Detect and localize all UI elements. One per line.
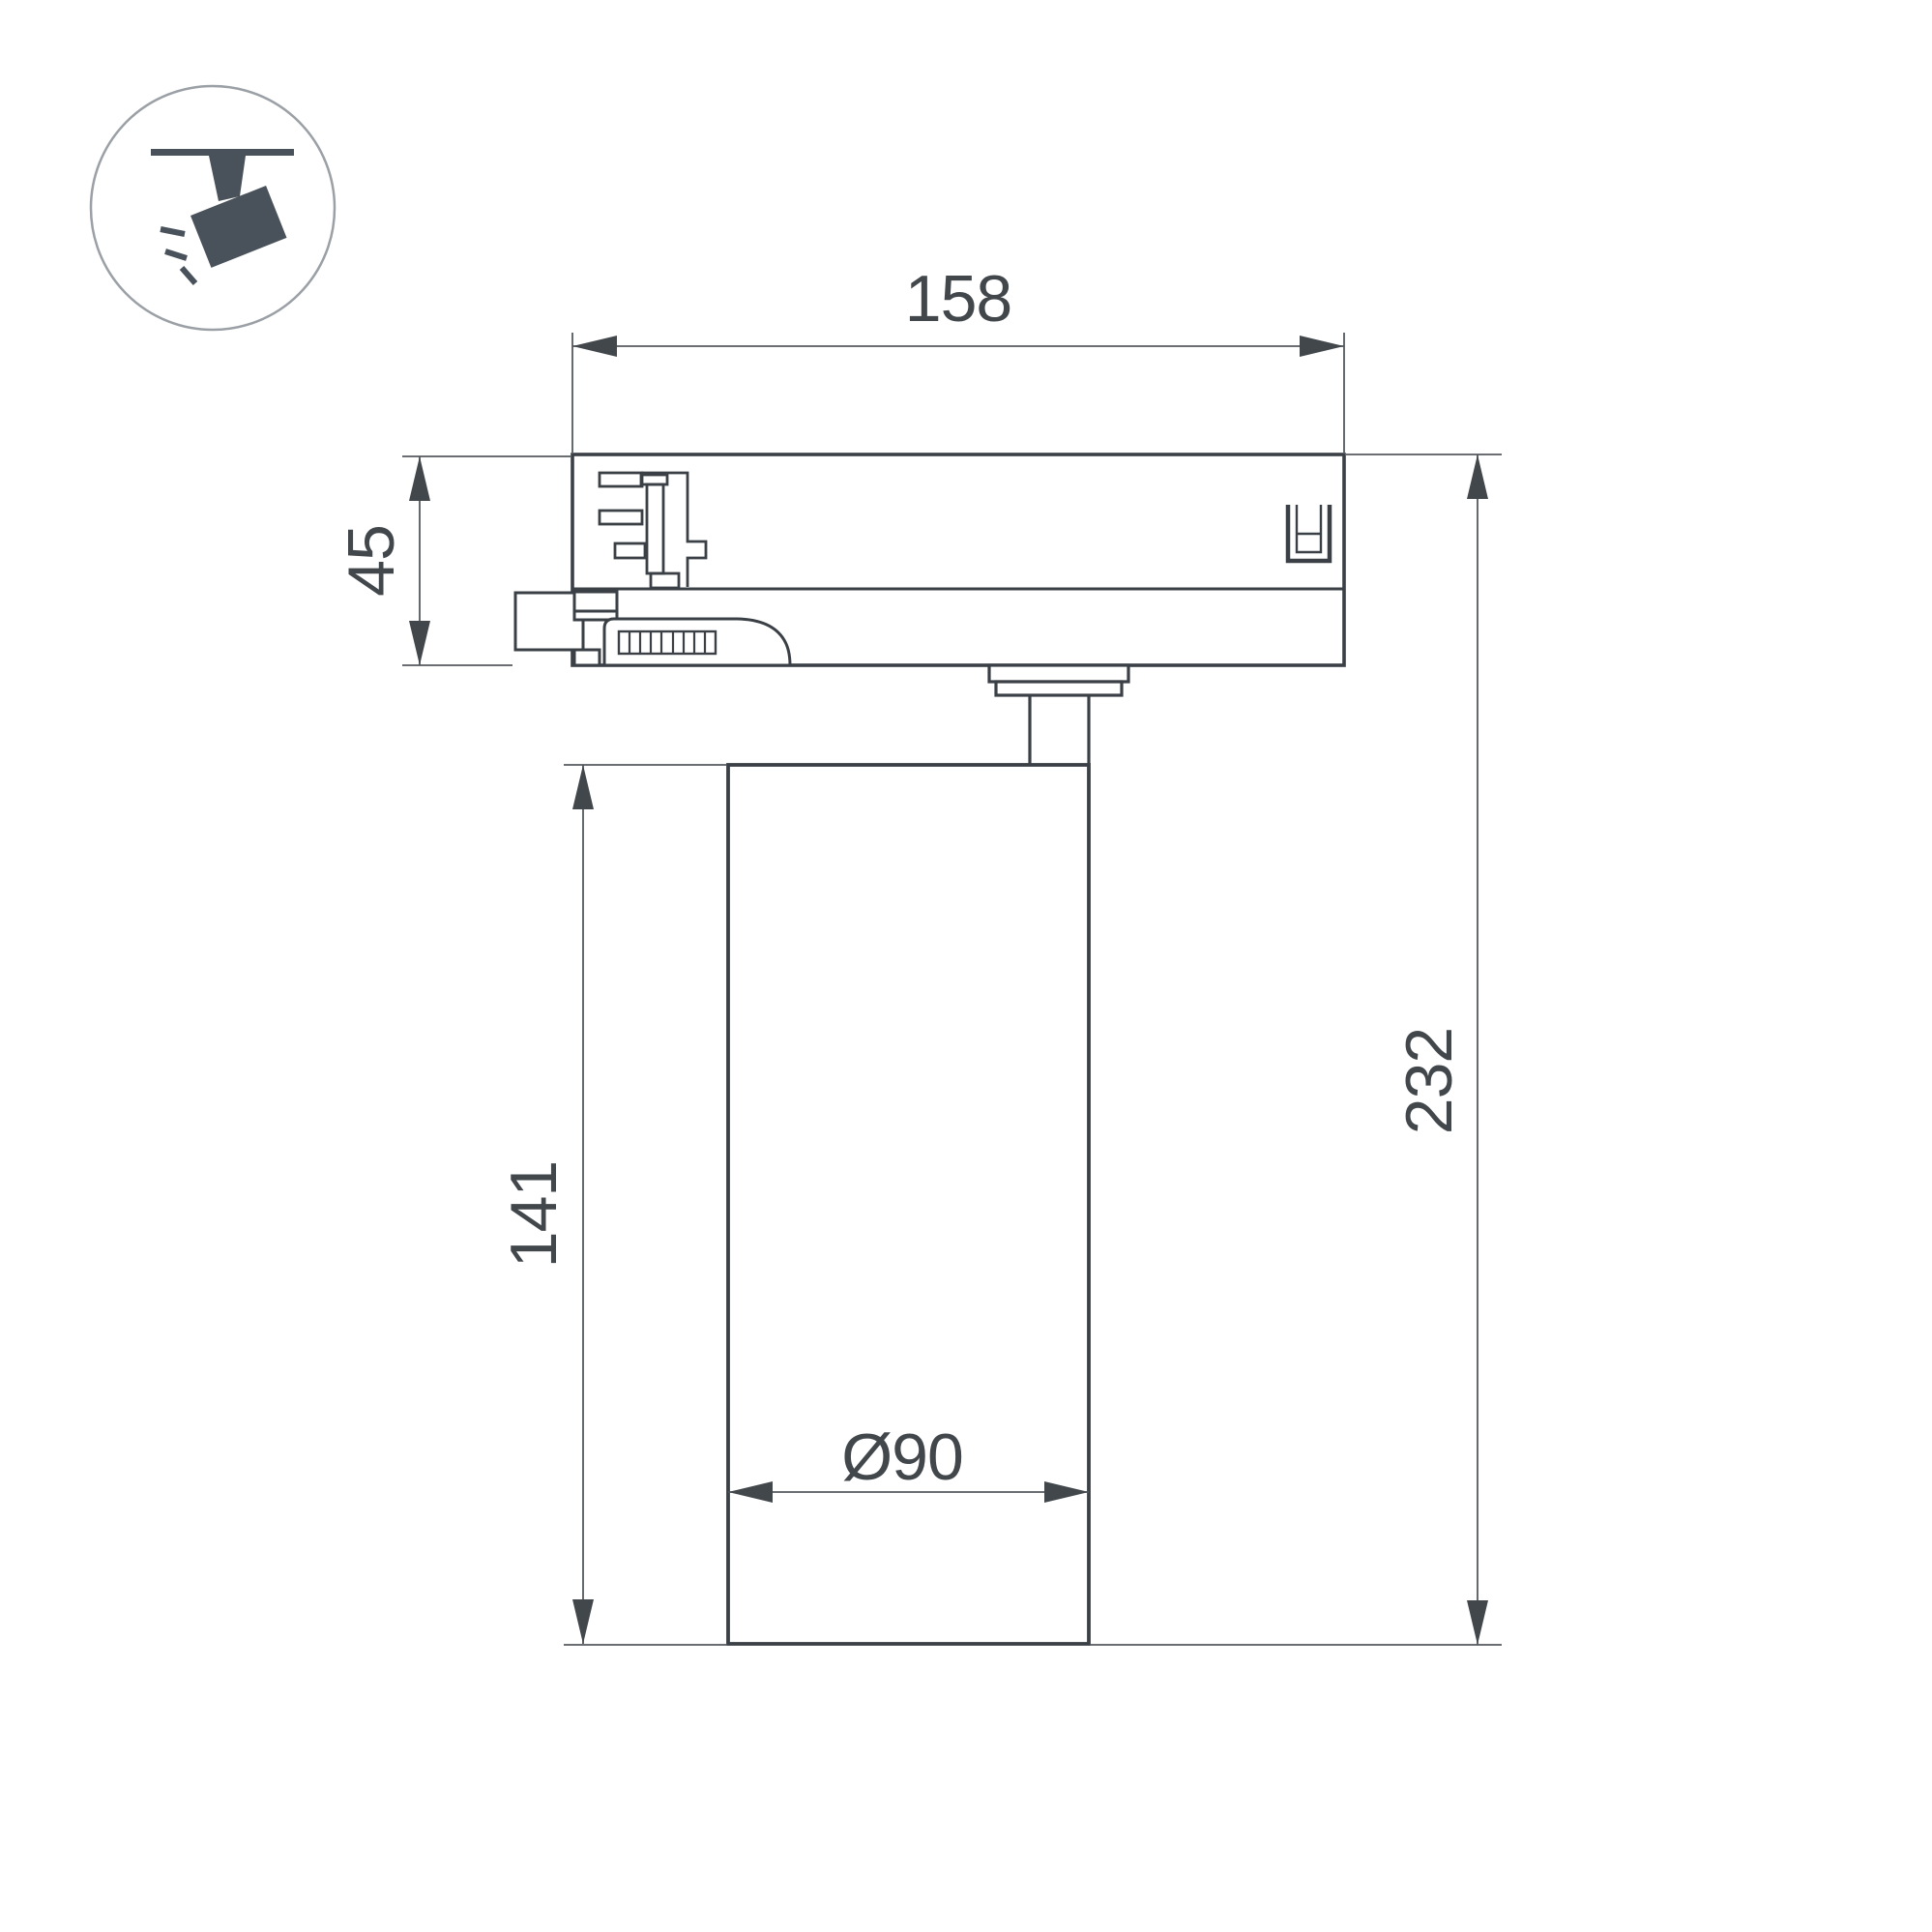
arrowhead-down — [409, 621, 430, 665]
arrowhead-up — [1467, 454, 1488, 499]
track-spotlight-icon — [91, 86, 335, 330]
dim-label-adapter-height: 45 — [335, 525, 408, 597]
slider-outline — [604, 619, 790, 665]
latch-clip — [574, 592, 617, 611]
dim-label-body-height: 141 — [497, 1161, 571, 1268]
arrowhead-left — [572, 336, 617, 357]
dim-adapter-width: 158 — [572, 262, 1344, 453]
icon-mount-stem — [209, 156, 246, 201]
arrowhead-down — [572, 1599, 594, 1644]
arrowhead-up — [572, 765, 594, 809]
icon-light-ray — [182, 268, 195, 283]
latch-step — [574, 650, 600, 665]
dim-label-total-height: 232 — [1392, 1028, 1466, 1134]
technical-drawing-canvas: 158 45 141 — [0, 0, 1932, 1932]
cylinder-body — [728, 765, 1089, 1644]
swivel-joint — [989, 665, 1128, 765]
arrowhead-right — [1300, 336, 1344, 357]
slider-lever — [604, 619, 790, 665]
icon-track-rail — [151, 149, 294, 156]
arrowhead-up — [409, 456, 430, 501]
joint-flange-lower — [996, 682, 1122, 695]
icon-lamp-body — [190, 186, 286, 268]
dim-label-adapter-width: 158 — [905, 262, 1011, 336]
icon-light-ray — [165, 251, 187, 258]
icon-light-ray — [161, 229, 185, 234]
icon-light-rays — [161, 229, 195, 283]
dim-label-diameter: Ø90 — [841, 1420, 963, 1494]
dim-body-height: 141 — [497, 765, 726, 1645]
arrowhead-down — [1467, 1600, 1488, 1645]
joint-flange-upper — [989, 665, 1128, 682]
drawing-page: 158 45 141 — [0, 0, 1932, 1932]
